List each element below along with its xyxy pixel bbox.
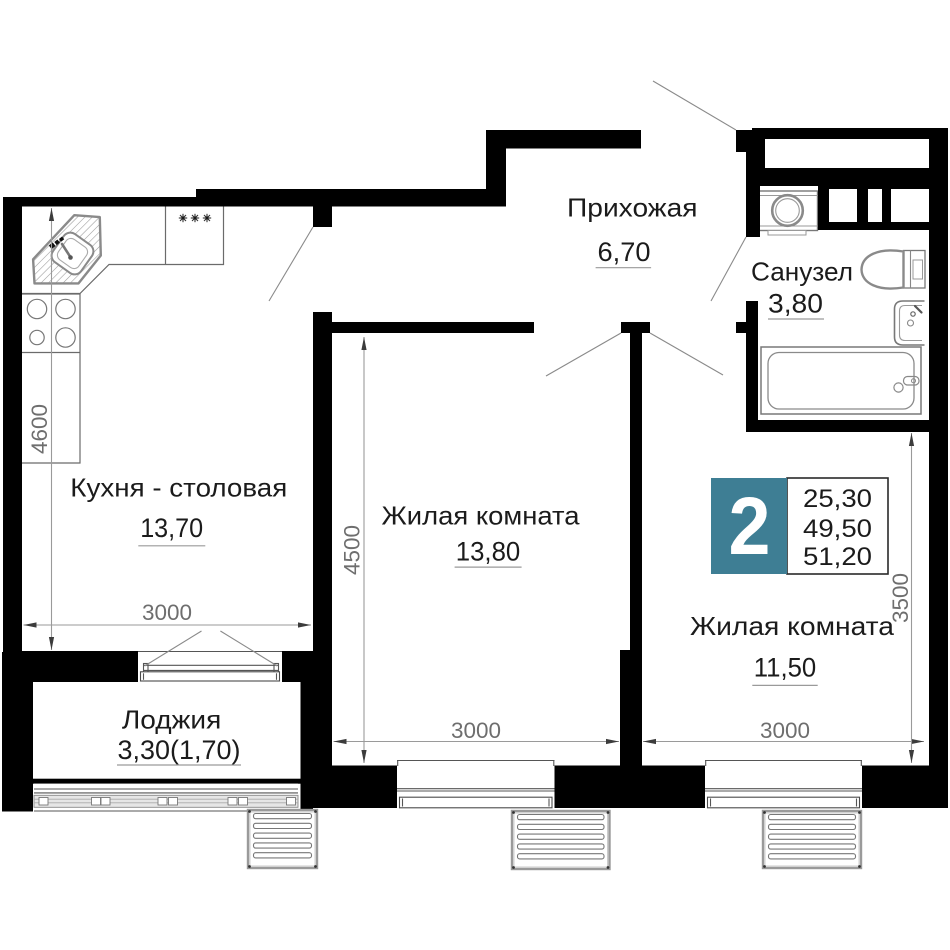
svg-text:49,50: 49,50 <box>803 515 872 543</box>
svg-text:13,70: 13,70 <box>140 513 203 543</box>
svg-text:4600: 4600 <box>27 404 52 454</box>
svg-text:6,70: 6,70 <box>598 237 651 267</box>
svg-text:Кухня - столовая: Кухня - столовая <box>70 473 287 503</box>
svg-text:3000: 3000 <box>451 718 501 743</box>
svg-text:2: 2 <box>729 481 771 572</box>
svg-text:25,30: 25,30 <box>803 485 872 513</box>
svg-text:3,80: 3,80 <box>768 288 823 318</box>
svg-text:Санузел: Санузел <box>751 256 853 286</box>
svg-text:Лоджия: Лоджия <box>122 705 221 735</box>
svg-text:3000: 3000 <box>760 718 810 743</box>
svg-text:Жилая комната: Жилая комната <box>690 611 895 641</box>
svg-text:3000: 3000 <box>142 600 192 625</box>
svg-text:13,80: 13,80 <box>456 536 521 566</box>
svg-text:3,30(1,70): 3,30(1,70) <box>118 735 241 765</box>
svg-text:4500: 4500 <box>340 525 365 575</box>
svg-text:11,50: 11,50 <box>754 652 817 682</box>
svg-text:Прихожая: Прихожая <box>567 193 698 223</box>
svg-text:Жилая комната: Жилая комната <box>382 501 581 531</box>
svg-text:51,20: 51,20 <box>803 543 872 571</box>
